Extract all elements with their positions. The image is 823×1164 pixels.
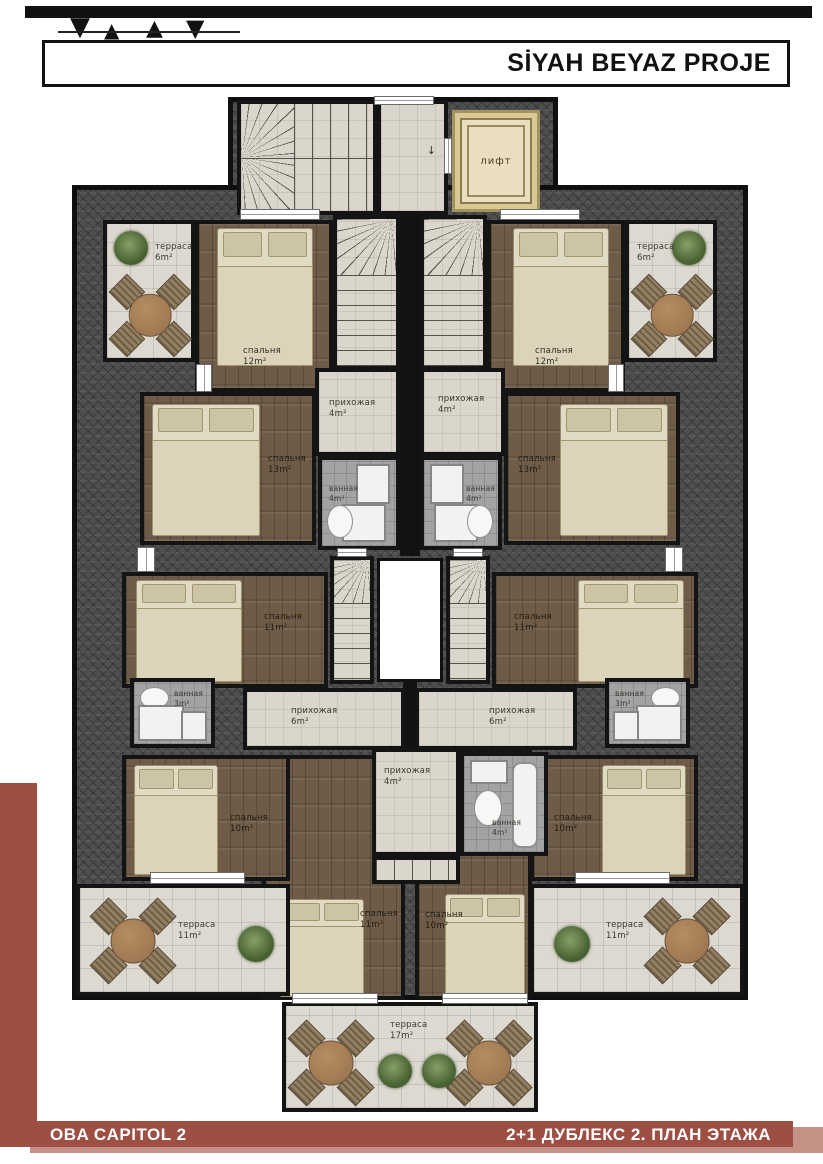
header-top-bar xyxy=(25,6,812,18)
room-label: терраса6m² xyxy=(637,242,674,264)
room-label: спальня12m² xyxy=(535,346,573,368)
plant-icon xyxy=(554,926,590,962)
table-set xyxy=(96,904,170,978)
stairs-apartment-left xyxy=(333,215,400,370)
room-lift: лифт xyxy=(452,110,540,212)
bed xyxy=(602,765,686,875)
window xyxy=(500,209,580,220)
shower-tray-icon xyxy=(138,705,184,741)
stair-midline xyxy=(241,158,373,159)
room-label: терраса6m² xyxy=(155,242,192,264)
room-label: прихожая4m² xyxy=(329,398,375,420)
room-hall-upper-right: прихожая4m² xyxy=(420,368,505,456)
room-bedroom-center-left: спальня11m² xyxy=(122,572,328,688)
footer-plan-title: 2+1 ДУБЛЕКС 2. ПЛАН ЭТАЖА xyxy=(506,1125,771,1145)
bed xyxy=(136,580,242,682)
room-label: ванная4m² xyxy=(492,818,521,838)
plant-icon xyxy=(672,231,706,265)
room-hall-mid-right: прихожая6m² xyxy=(415,688,577,750)
room-label: спальня10m² xyxy=(230,813,268,835)
lift-door-gap xyxy=(444,138,452,174)
room-bedroom-mid-right: спальня13m² xyxy=(504,392,680,545)
lift-label: лифт xyxy=(480,156,511,167)
logo-underline xyxy=(58,31,240,33)
room-label: спальня10m² xyxy=(554,813,592,835)
room-bath-small-left: ванная3m² xyxy=(130,678,215,748)
shower-tray-icon xyxy=(636,705,682,741)
header-title-box: SİYAH BEYAZ PROJE xyxy=(42,40,790,87)
window xyxy=(575,872,670,884)
bird-logo-icon: ▼ xyxy=(70,14,90,40)
bed xyxy=(134,765,218,875)
plant-icon xyxy=(422,1054,456,1088)
stair-winder xyxy=(334,560,370,603)
page-title: SİYAH BEYAZ PROJE xyxy=(507,49,787,78)
table-set xyxy=(637,280,707,350)
down-arrow-icon: ↓ xyxy=(427,144,436,157)
center-wall-upper xyxy=(400,215,420,556)
table-icon xyxy=(111,919,156,964)
room-label: терраса17m² xyxy=(390,1020,427,1042)
shower-icon xyxy=(181,711,207,741)
stairwell-run-right xyxy=(446,556,490,684)
room-bedroom-top-right: спальня12m² xyxy=(487,220,625,392)
room-bath-upper-right: ванная4m² xyxy=(420,456,502,550)
room-label: спальня10m² xyxy=(425,910,463,932)
table-set xyxy=(452,1026,526,1100)
room-bath-bottom-center: ванная4m² xyxy=(460,752,548,856)
room-terrace-top-left: терраса6m² xyxy=(103,220,195,362)
room-terrace-bottom-center: терраса17m² xyxy=(282,1002,538,1112)
bed xyxy=(560,404,668,536)
room-label: прихожая4m² xyxy=(384,766,430,788)
shower-icon xyxy=(356,464,390,504)
bed xyxy=(280,899,364,997)
room-hall-upper-left: прихожая4m² xyxy=(315,368,400,456)
toilet-icon xyxy=(327,505,353,538)
stair-treads xyxy=(337,275,396,366)
room-bedroom-bottom-right: спальня10m² xyxy=(530,755,698,881)
stair-treads xyxy=(334,603,370,680)
room-terrace-bottom-left: терраса11m² xyxy=(76,884,290,996)
room-label: терраса11m² xyxy=(606,920,643,942)
stairs-top-public xyxy=(237,100,377,215)
room-label: ванная3m² xyxy=(615,689,644,709)
room-label: прихожая4m² xyxy=(438,394,484,416)
accent-strip-left xyxy=(0,783,37,1147)
stair-winder xyxy=(424,219,483,275)
room-label: прихожая6m² xyxy=(489,706,535,728)
corridor-top: ↓ xyxy=(377,100,448,215)
plant-icon xyxy=(114,231,148,265)
table-set xyxy=(650,904,724,978)
window xyxy=(665,547,683,572)
room-label: спальня11m² xyxy=(360,909,398,931)
room-label: спальня12m² xyxy=(243,346,281,368)
window xyxy=(453,548,483,557)
room-bedroom-top-left: спальня12m² xyxy=(195,220,333,392)
stair-treads xyxy=(450,603,486,680)
room-label: ванная4m² xyxy=(329,484,358,504)
toilet-icon xyxy=(467,505,493,538)
stair-treads xyxy=(424,275,483,366)
room-label: спальня11m² xyxy=(514,612,552,634)
table-set xyxy=(115,280,185,350)
stairs-apartment-right xyxy=(420,215,487,370)
bird-logo-icon: ▲ xyxy=(146,18,163,40)
window xyxy=(608,364,624,392)
room-label: спальня13m² xyxy=(268,454,306,476)
bed xyxy=(578,580,684,682)
table-icon xyxy=(129,294,172,337)
room-hall-mid-left: прихожая6m² xyxy=(243,688,405,750)
shower-icon xyxy=(430,464,464,504)
window xyxy=(292,993,378,1004)
room-bath-upper-left: ванная4m² xyxy=(318,456,400,550)
table-icon xyxy=(467,1041,512,1086)
room-label: ванная3m² xyxy=(174,689,203,709)
window xyxy=(337,548,367,557)
window xyxy=(240,209,320,220)
window xyxy=(442,993,528,1004)
window xyxy=(137,547,155,572)
window xyxy=(150,872,245,884)
footer-project-name: OBA CAPITOL 2 xyxy=(50,1125,187,1145)
room-bedroom-mid-left: спальня13m² xyxy=(140,392,316,545)
room-label: спальня13m² xyxy=(518,454,556,476)
stair-winder xyxy=(450,560,486,603)
plant-icon xyxy=(238,926,274,962)
room-label: терраса11m² xyxy=(178,920,215,942)
room-bath-small-right: ванная3m² xyxy=(605,678,690,748)
table-icon xyxy=(651,294,694,337)
room-terrace-bottom-right: терраса11m² xyxy=(530,884,744,996)
window xyxy=(196,364,212,392)
table-set xyxy=(294,1026,368,1100)
bed xyxy=(152,404,260,536)
bird-logo-icon: ▲ xyxy=(104,20,119,40)
table-icon xyxy=(665,919,710,964)
room-bedroom-bottom-left: спальня10m² xyxy=(122,755,290,881)
room-label: спальня11m² xyxy=(264,612,302,634)
room-bedroom-center-right: спальня11m² xyxy=(492,572,698,688)
table-icon xyxy=(309,1041,354,1086)
plant-icon xyxy=(378,1054,412,1088)
room-terrace-top-right: терраса6m² xyxy=(625,220,717,362)
floor-plan-poster: ▼ ▲ ▲ ▼ SİYAH BEYAZ PROJE ↓ лифт терраса… xyxy=(0,0,823,1164)
stairs-bottom-center xyxy=(372,856,460,884)
stair-winder xyxy=(337,219,396,275)
room-label: ванная4m² xyxy=(466,484,495,504)
shower-icon xyxy=(470,760,508,784)
stairwell-void xyxy=(377,558,443,682)
bird-logo-icon: ▼ xyxy=(186,16,204,40)
shower-icon xyxy=(613,711,639,741)
room-hall-bottom-center: прихожая4m² xyxy=(372,748,460,856)
window xyxy=(374,96,434,105)
room-label: прихожая6m² xyxy=(291,706,337,728)
stairwell-run-left xyxy=(330,556,374,684)
